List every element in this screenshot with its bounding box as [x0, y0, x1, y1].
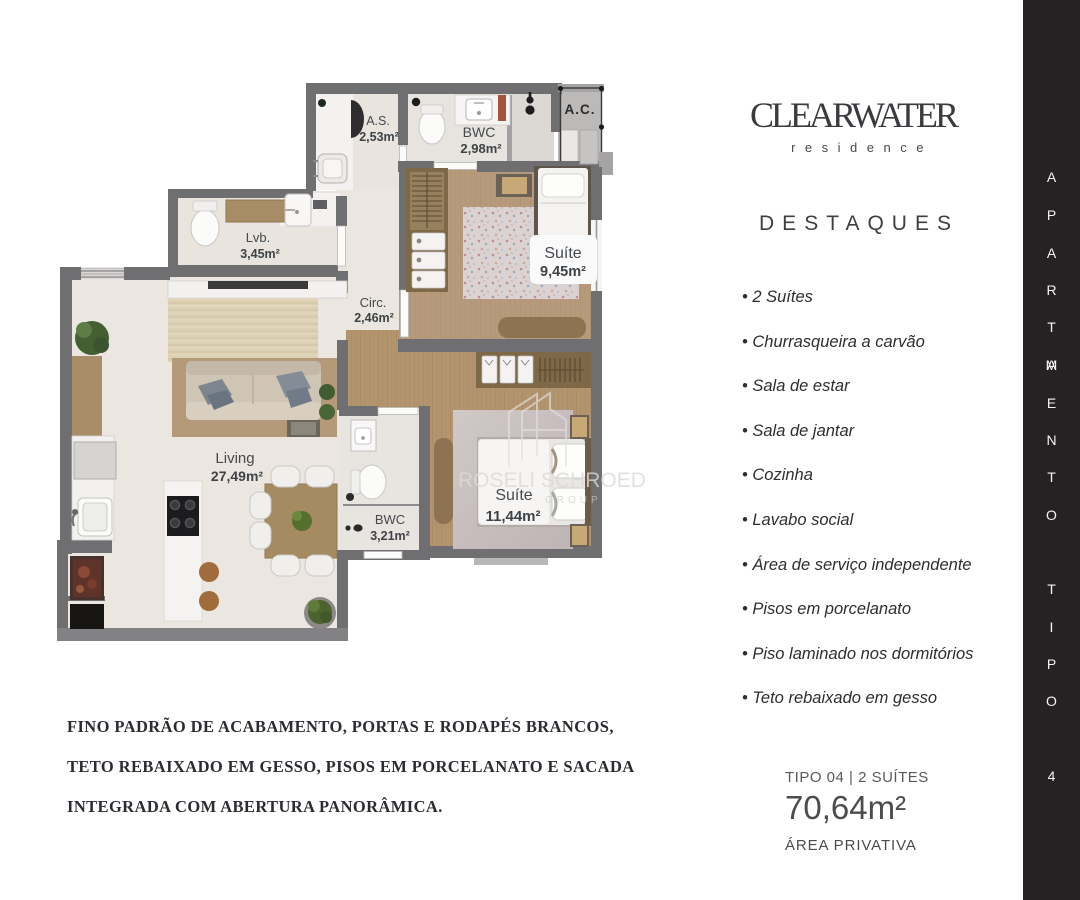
svg-text:GROUP: GROUP [545, 495, 602, 506]
svg-text:2,46m²: 2,46m² [354, 311, 394, 325]
svg-text:27,49m²: 27,49m² [211, 468, 263, 484]
svg-text:A.C.: A.C. [565, 102, 596, 117]
svg-text:ROSELI SCHROED: ROSELI SCHROED [458, 469, 646, 492]
svg-text:Living: Living [215, 450, 254, 467]
svg-text:A.S.: A.S. [366, 114, 390, 128]
svg-text:Suíte: Suíte [544, 245, 581, 262]
svg-text:2,98m²: 2,98m² [460, 141, 502, 156]
svg-text:Circ.: Circ. [360, 295, 387, 310]
svg-text:3,45m²: 3,45m² [240, 247, 280, 261]
svg-text:Lvb.: Lvb. [246, 230, 271, 245]
svg-text:2,53m²: 2,53m² [359, 130, 399, 144]
svg-text:11,44m²: 11,44m² [485, 508, 540, 525]
svg-text:3,21m²: 3,21m² [370, 529, 410, 543]
svg-text:9,45m²: 9,45m² [540, 264, 586, 280]
svg-text:BWC: BWC [375, 512, 405, 527]
svg-text:BWC: BWC [463, 124, 496, 140]
